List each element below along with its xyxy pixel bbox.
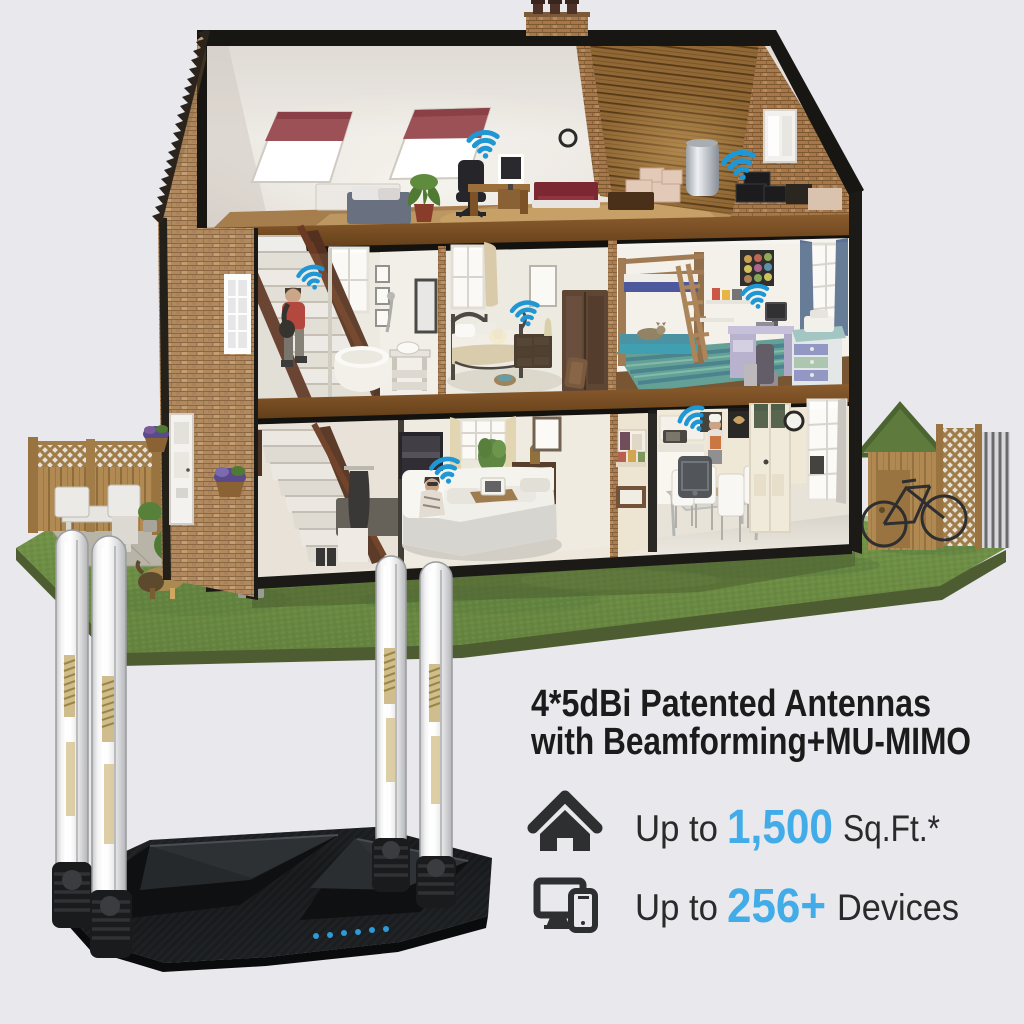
- svg-text:Sq.Ft.*: Sq.Ft.*: [843, 808, 940, 849]
- svg-text:Up to: Up to: [635, 808, 718, 849]
- svg-text:4*5dBi Patented Antennas: 4*5dBi Patented Antennas: [531, 683, 931, 725]
- svg-text:1,500: 1,500: [727, 801, 833, 854]
- svg-text:Devices: Devices: [837, 887, 959, 928]
- svg-text:256+: 256+: [727, 880, 826, 933]
- svg-text:Up to: Up to: [635, 887, 718, 928]
- svg-text:with Beamforming+MU-MIMO: with Beamforming+MU-MIMO: [530, 721, 971, 763]
